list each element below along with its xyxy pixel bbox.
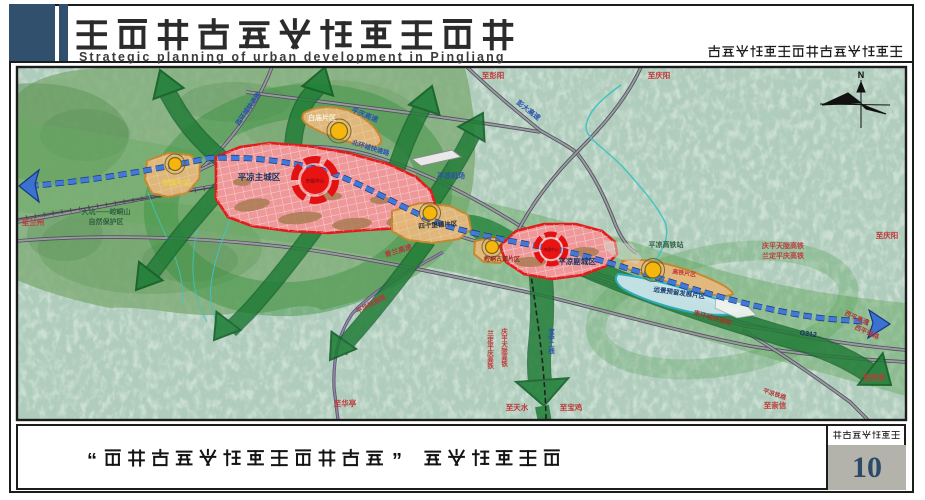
svg-text:至庆阳: 至庆阳 [648,70,671,80]
svg-text:白庙片区: 白庙片区 [308,113,336,122]
svg-text:至彭阳: 至彭阳 [482,70,505,80]
svg-text:平凉高铁站: 平凉高铁站 [649,240,684,249]
svg-text:至崇信: 至崇信 [764,400,787,410]
svg-text:庆平天陇高铁: 庆平天陇高铁 [761,241,804,250]
svg-text:至兰州: 至兰州 [22,217,45,227]
svg-text:安国片区: 安国片区 [162,178,190,187]
svg-text:市级中心: 市级中心 [305,178,324,185]
svg-text:至西安: 至西安 [863,372,886,382]
svg-text:自然保护区: 自然保护区 [89,217,124,226]
svg-text:N: N [858,70,865,80]
svg-text:崆峒古镇片区: 崆峒古镇片区 [484,255,520,263]
svg-text:至天水: 至天水 [506,402,529,412]
svg-text:平凉副城区: 平凉副城区 [558,256,596,266]
svg-text:兰定平庆高铁: 兰定平庆高铁 [762,251,804,260]
svg-text:至宝鸡: 至宝鸡 [560,402,583,412]
svg-text:至华亭: 至华亭 [334,398,357,408]
svg-text:市级中心: 市级中心 [543,247,558,252]
svg-text:平凉机场: 平凉机场 [437,171,465,180]
svg-text:平凉主城区: 平凉主城区 [238,172,281,182]
svg-text:大坑——崆峒山: 大坑——崆峒山 [82,207,131,216]
svg-text:至庆阳: 至庆阳 [876,230,899,240]
